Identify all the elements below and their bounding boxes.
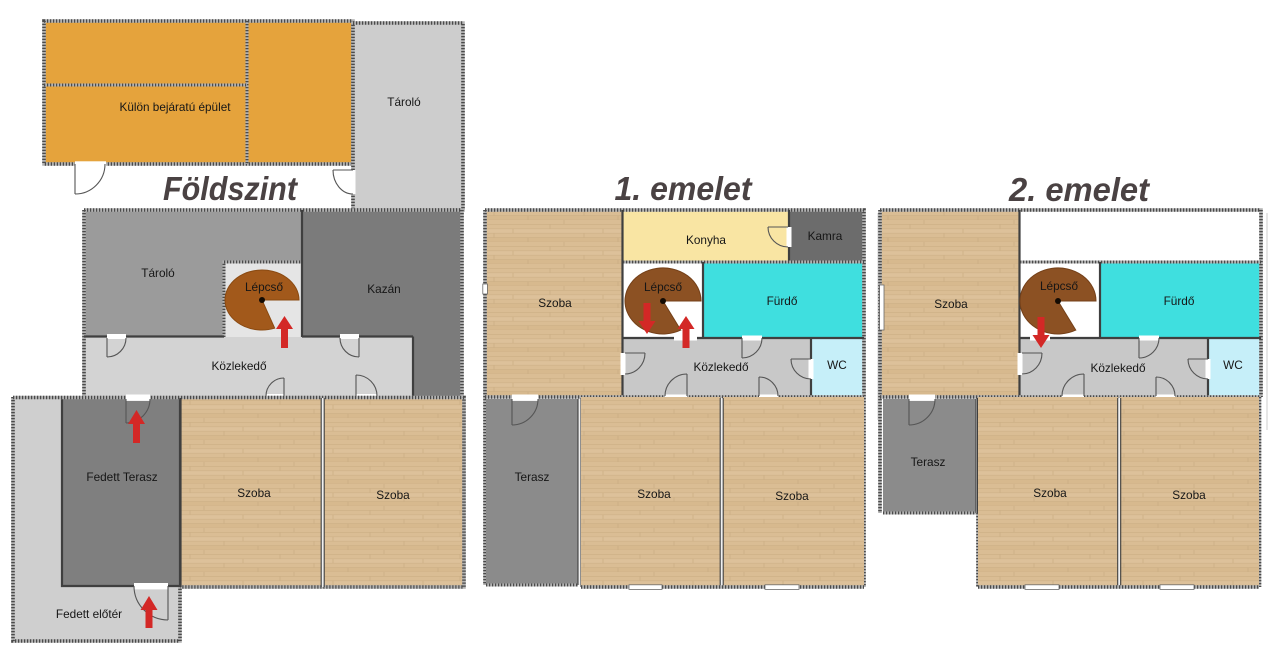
- svg-text:Külön bejáratú épület: Külön bejáratú épület: [120, 100, 232, 114]
- svg-text:Szoba: Szoba: [1172, 488, 1206, 502]
- svg-text:Lépcső: Lépcső: [644, 280, 682, 294]
- svg-text:Szoba: Szoba: [376, 488, 410, 502]
- svg-text:Lépcső: Lépcső: [1040, 279, 1078, 293]
- svg-text:Tároló: Tároló: [387, 95, 421, 109]
- svg-text:Szoba: Szoba: [538, 296, 572, 310]
- svg-text:Terasz: Terasz: [515, 470, 550, 484]
- svg-text:Konyha: Konyha: [686, 233, 726, 247]
- svg-text:Kamra: Kamra: [808, 229, 843, 243]
- svg-text:Fürdő: Fürdő: [1164, 294, 1195, 308]
- svg-text:1. emelet: 1. emelet: [615, 170, 754, 207]
- svg-text:Közlekedő: Közlekedő: [211, 359, 267, 373]
- svg-text:Földszint: Földszint: [163, 170, 299, 207]
- svg-text:Szoba: Szoba: [934, 297, 968, 311]
- svg-text:Terasz: Terasz: [911, 455, 946, 469]
- svg-text:2. emelet: 2. emelet: [1008, 171, 1151, 208]
- svg-text:WC: WC: [1223, 358, 1243, 372]
- svg-text:Fürdő: Fürdő: [767, 294, 798, 308]
- svg-text:Szoba: Szoba: [237, 486, 271, 500]
- svg-text:Fedett Terasz: Fedett Terasz: [86, 470, 157, 484]
- svg-text:WC: WC: [827, 358, 847, 372]
- svg-text:Szoba: Szoba: [1033, 486, 1067, 500]
- svg-text:Szoba: Szoba: [637, 487, 671, 501]
- svg-text:Kazán: Kazán: [367, 282, 400, 296]
- svg-text:Közlekedő: Közlekedő: [1090, 361, 1146, 375]
- svg-text:Szoba: Szoba: [775, 489, 809, 503]
- svg-text:Fedett előtér: Fedett előtér: [56, 607, 122, 621]
- svg-text:Tároló: Tároló: [141, 266, 175, 280]
- svg-text:Lépcső: Lépcső: [245, 280, 283, 294]
- svg-text:Közlekedő: Közlekedő: [693, 360, 749, 374]
